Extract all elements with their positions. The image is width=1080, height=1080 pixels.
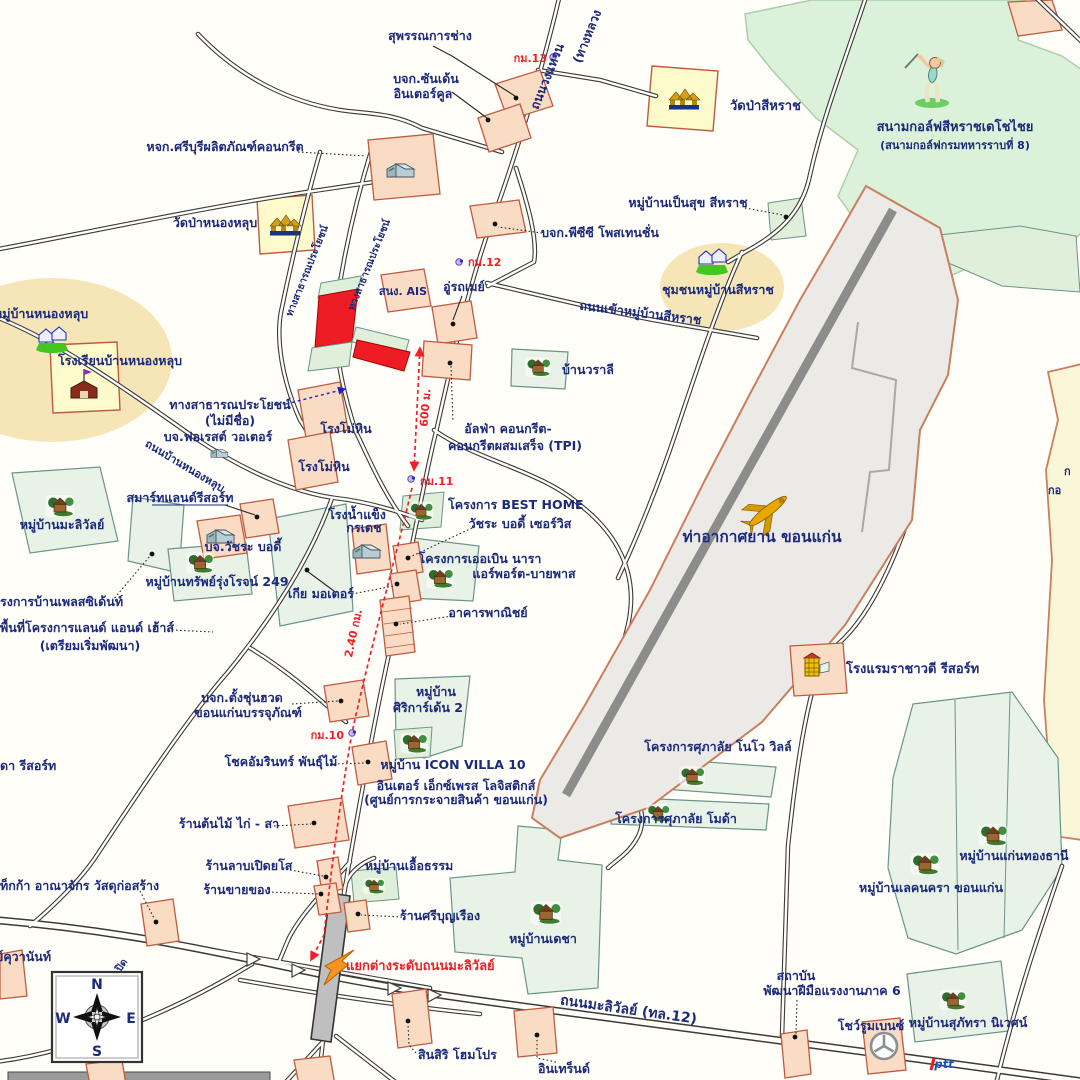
village-area-kia [268, 504, 353, 626]
parcel-commercial-building [380, 596, 415, 656]
village-icon [46, 495, 75, 517]
label-village: หมู่บ้านเป็นสุข สีหราช [628, 195, 748, 211]
label-clipped: ก [1064, 465, 1071, 478]
label-company: อัลฟ่า คอนกรีต- [464, 421, 551, 436]
ptt-logo-text: ptt [933, 1057, 954, 1071]
label-ice-factory: กรเดช [346, 520, 382, 535]
mercedes-logo-icon [871, 1033, 897, 1059]
label-service: วัชระ บอดี้ เซอร์วิส [469, 514, 572, 531]
label-quarry: โรงโม่หิน [297, 459, 350, 474]
label-shop: สุพรรณการช่าง [388, 28, 472, 44]
village-icon [979, 824, 1008, 846]
map-svg: สุพรรณการช่าง บจก.ซันเด้น อินเตอร์คูล กม… [0, 0, 1080, 1080]
parcel [294, 1056, 335, 1080]
label-company: บจ.ฟอเรสต์ วอเตอร์ [164, 429, 273, 444]
label-village: หมู่บ้าน [416, 684, 456, 700]
label-shop: ท็กก้า อาณาจักร วัสดุก่อสร้าง [0, 878, 159, 894]
label-temple: วัดป่าหนองหลุบ [173, 215, 257, 231]
label-institute: พัฒนาฝีมือแรงงานภาค 6 [763, 983, 901, 998]
village-icon [940, 990, 967, 1010]
village-icon [409, 502, 433, 521]
label-institute: สถาบัน [777, 968, 816, 983]
km-marker-icon [349, 730, 356, 736]
km13-marker-label: กม.13 [514, 52, 547, 65]
label-golf-course-alt: (สนามกอล์ฟกรมทหารราบที่ 8) [880, 137, 1030, 152]
label-company: บจ.วัชระ บอดี้ [205, 537, 283, 554]
label-store: อินเทร็นด์ [538, 1061, 590, 1076]
parcel [470, 200, 526, 238]
label-company: อินเตอร์คูล [393, 86, 452, 102]
village-icon [400, 733, 427, 754]
village-icon [531, 901, 562, 924]
label-dealer: เกีย มอเตอร์ [288, 586, 354, 601]
label-company: คอนกรีตผสมเสร็จ (TPI) [448, 438, 582, 453]
village-icon [363, 878, 384, 894]
label-project: โครงการ BEST HOME [447, 497, 584, 512]
label-project: โครงการศุภาลัย โมด้า [614, 811, 737, 827]
interchange-label: แยกต่างระดับถนนมะลิวัลย์ [346, 958, 495, 974]
label-office: สนง. AIS [379, 285, 427, 298]
label-showroom: โชว์รูมเบนซ์ [837, 1018, 905, 1034]
parcel [514, 1007, 557, 1057]
label-resort: สมาร์ทแลนด์รีสอร์ท [126, 490, 233, 505]
label-village: หมู่บ้านสุภัทรา นิเวศน์ [909, 1015, 1028, 1031]
label-project: รงการบ้านเพลสซิเด้นท์ [0, 594, 123, 609]
label-project: โครงการเออเบิน นารา [418, 551, 542, 566]
label-garage: อู่รถเมย์ [443, 279, 485, 295]
compass-north-label: N [91, 977, 103, 993]
bottom-road-band [8, 1072, 270, 1080]
label-golf-course: สนามกอล์ฟสีหราชเดโชไชย [877, 118, 1034, 135]
label-village: หมู่บ้านเลคนครา ขอนแก่น [859, 880, 1003, 896]
label-village: หมู่บ้านเดชา [509, 931, 577, 947]
label-shop: ร้านศรีบุญเรือง [400, 908, 480, 924]
village-icon [186, 553, 213, 574]
label-unnamed-road: (ไม่มีชื่อ) [205, 412, 255, 428]
label-project: โครงการศุภาลัย โนโว วิลล์ [643, 739, 791, 755]
label-project: พื้นที่โครงการแลนด์ แอนด์ เฮ้าส์ [0, 618, 174, 635]
parcel [392, 989, 432, 1048]
label-community: ชุมชนหมู่บ้านสีหราช [662, 282, 774, 298]
label-project: แอร์พอร์ต-บายพาส [472, 566, 576, 581]
label-airport: ท่าอากาศยาน ขอนแก่น [682, 528, 842, 546]
parcel [314, 883, 341, 915]
village-icon [911, 853, 940, 875]
label-commercial: อาคารพาณิชย์ [448, 605, 527, 620]
label-school: โรงเรียนบ้านหนองหลุบ [57, 353, 182, 369]
compass-south-label: S [92, 1044, 102, 1060]
label-village: หมู่บ้านแก่นทองธานี [959, 848, 1069, 864]
label-village: หมู่บ้านหนองหลุบ [0, 306, 88, 322]
label-shop: ร้านต้นไม้ ไก่ - สา [179, 816, 279, 831]
parcel [240, 499, 279, 538]
label-logistics: อินเตอร์ เอ็กซ์เพรส โลจิสติกส์ [376, 778, 536, 793]
label-store: สินสิริ โฮมโปร [418, 1047, 497, 1062]
label-company: ขอนแก่นบรรจุภัณฑ์ [194, 705, 302, 721]
label-shop: ร้านขายของ [203, 882, 270, 897]
km12-marker-label: กม.12 [468, 256, 501, 269]
compass-east-label: E [126, 1011, 136, 1027]
compass-west-label: W [55, 1011, 70, 1027]
label-logistics: (ศูนย์การกระจายสินค้า ขอนแก่น) [364, 792, 548, 808]
parcel [141, 899, 179, 946]
km-marker-icon [408, 476, 415, 482]
km11-marker-label: กม.11 [420, 475, 453, 488]
village-icon [426, 568, 453, 589]
label-unnamed-road: ทางสาธารณประโยชน์ [169, 397, 291, 412]
label-company: บจก.พีซีซี โพสเทนชั่น [541, 224, 659, 240]
label-village: หมู่บ้านมะลิวัลย์ [20, 517, 105, 533]
label-clipped: ย์คุวานันท์ [0, 949, 51, 965]
label-shop: ร้านลาบเปิดยโส [206, 858, 293, 873]
compass: N S E W [52, 972, 142, 1062]
km10-marker-label: กม.10 [311, 729, 345, 742]
label-company: บจก.ซันเด้น [393, 71, 459, 86]
label-hotel: โรงแรมราชาวดี รีสอร์ท [845, 660, 979, 677]
label-quarry: โรงโม่หิน [319, 421, 372, 436]
label-company: หจก.ศรีบุรีผลิตภัณฑ์คอนกรีต [146, 139, 303, 155]
village-icon [525, 357, 551, 377]
label-village: ศิริการ์เด้น 2 [393, 700, 463, 715]
village-icon [679, 766, 705, 786]
label-village: หมู่บ้าน ICON VILLA 10 [380, 757, 526, 773]
label-village: หมู่บ้านทรัพย์รุ่งโรจน์ 249 [145, 574, 288, 590]
label-temple: วัดป่าสีหราช [730, 98, 801, 114]
label-resort: ดา รีสอร์ท [0, 758, 56, 773]
label-project: (เตรียมเริ่มพัฒนา) [40, 637, 140, 653]
label-village: บ้านวราลี [562, 362, 614, 377]
label-company: บจก.ตั้งชุ่นฮวด [201, 688, 283, 706]
label-clipped: กอ [1048, 484, 1061, 497]
label-village: หมู่บ้านเอื้อธรรม [365, 856, 454, 874]
map-canvas: สุพรรณการช่าง บจก.ซันเด้น อินเตอร์คูล กม… [0, 0, 1080, 1080]
km-marker-icon [456, 259, 463, 265]
label-shop: โชคอัมรินทร์ พันธุ์ไม้ [224, 754, 338, 770]
parcel [422, 341, 472, 380]
